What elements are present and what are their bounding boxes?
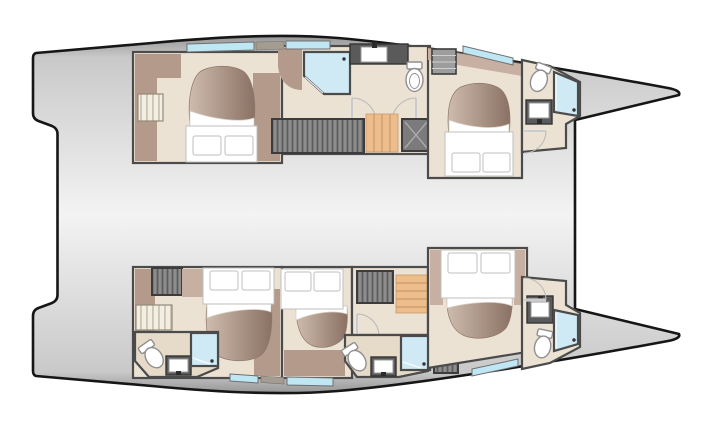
shelf-unit [432, 49, 456, 74]
pillow [448, 253, 477, 273]
faucet-icon [176, 371, 181, 375]
washbasin-unit [166, 356, 191, 375]
pillow [225, 136, 253, 155]
pillow [242, 271, 270, 290]
washbasin [531, 302, 549, 317]
pillow [210, 271, 238, 290]
hull-window [287, 377, 333, 386]
double-bed [445, 83, 513, 176]
pillow [285, 272, 311, 291]
cabinet [182, 269, 204, 297]
shower [401, 336, 430, 370]
cabinet [284, 350, 345, 376]
shower-head-icon [422, 362, 425, 365]
shower-head-icon [342, 57, 345, 60]
window-mullion [261, 376, 284, 384]
shower-head-icon [210, 359, 213, 362]
shower-head-icon [572, 108, 575, 111]
yacht-floorplan-canvas: Catamaran yacht interior deck plan, top … [0, 0, 704, 430]
double-bed [186, 66, 257, 162]
staircase [396, 275, 427, 313]
faucet-icon [537, 119, 542, 124]
shower-head-icon [572, 338, 575, 341]
pillow [481, 253, 510, 273]
hull-window [230, 374, 258, 383]
hull-window [187, 42, 254, 52]
window-mullion [256, 42, 284, 51]
double-bed [441, 250, 515, 338]
cabinet [135, 54, 181, 78]
washbasin-unit [526, 100, 552, 124]
louver-locker [357, 271, 393, 303]
washbasin [361, 47, 387, 62]
faucet-icon [372, 42, 377, 48]
washbasin [529, 103, 549, 118]
staircase [366, 114, 398, 152]
washbasin-unit [350, 42, 408, 64]
washbasin [374, 360, 393, 373]
shower [554, 310, 578, 351]
pillow [483, 153, 510, 172]
louver-wardrobe [272, 119, 364, 153]
slatted-locker [138, 94, 163, 121]
washbasin [169, 359, 188, 372]
hull-window [286, 41, 330, 49]
deck-plan-svg: Catamaran yacht interior deck plan, top … [0, 0, 704, 430]
slatted-locker [136, 305, 172, 330]
toilet-room [406, 62, 423, 92]
louver-locker [152, 268, 182, 295]
shower [191, 333, 218, 366]
washbasin-unit [371, 357, 396, 376]
pillow [452, 153, 480, 172]
technical-locker [402, 119, 430, 151]
faucet-icon [381, 372, 386, 376]
pillow [314, 272, 340, 291]
pillow [193, 136, 221, 155]
